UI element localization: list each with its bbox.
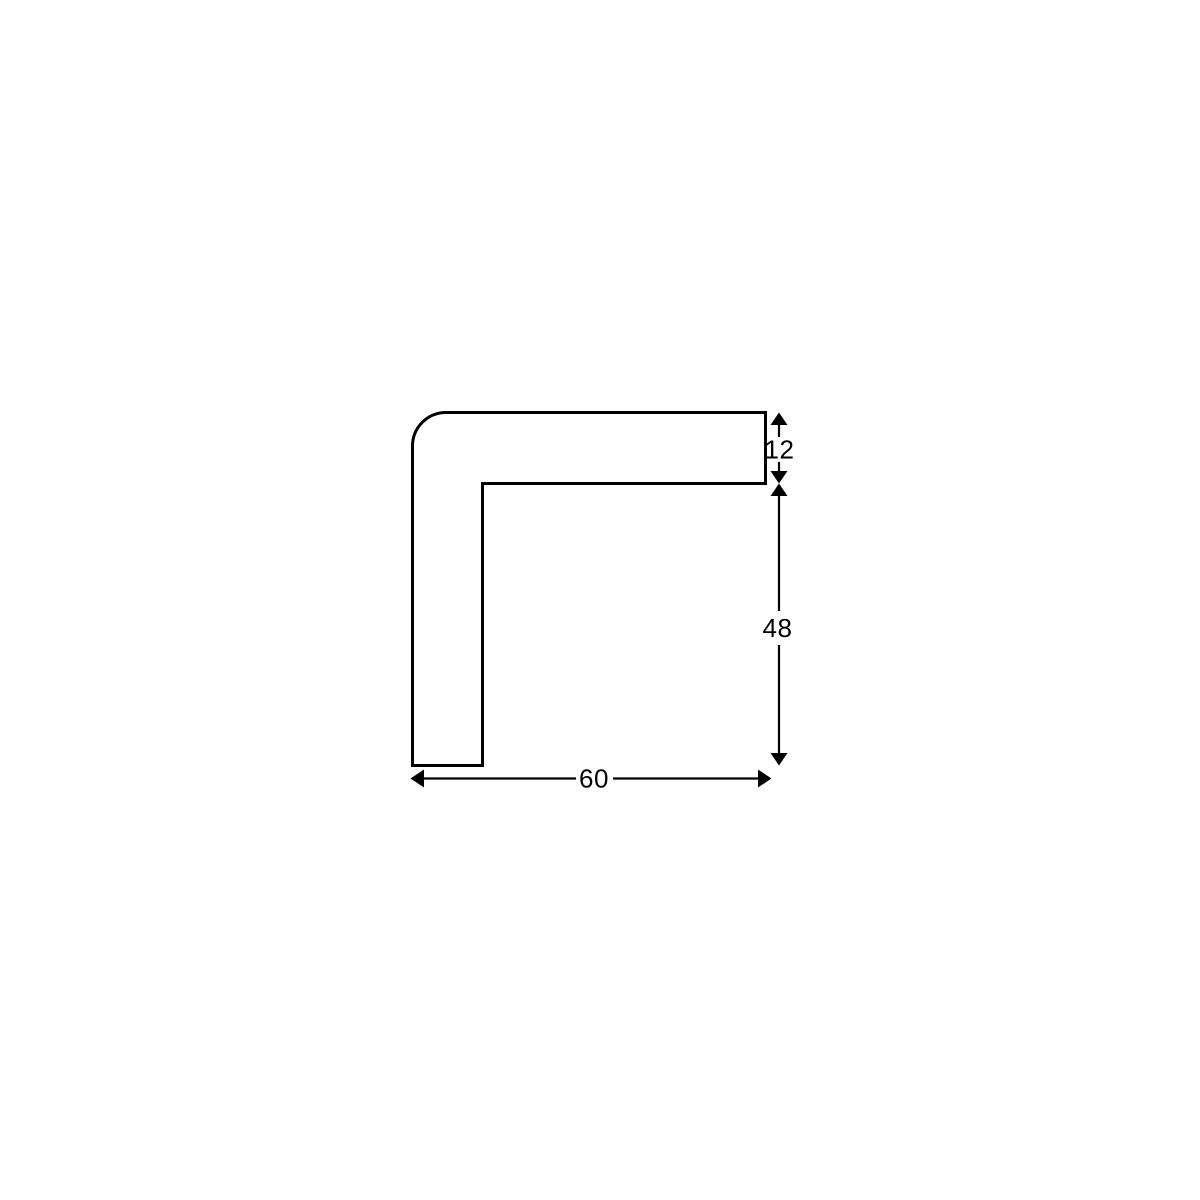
arrow-left-icon [411, 770, 425, 788]
dimension-width-label: 60 [579, 764, 609, 794]
diagram-canvas: 12 48 60 [0, 0, 1200, 1200]
arrow-down-icon [771, 471, 788, 484]
dimension-thickness-label: 12 [765, 435, 795, 465]
corner-profile-dimension-diagram: 12 48 60 [0, 0, 1200, 1200]
arrow-right-icon [758, 770, 772, 788]
arrow-up-icon [771, 484, 788, 497]
arrow-down-icon [771, 753, 788, 766]
arrow-up-icon [771, 413, 788, 426]
dimension-thickness: 12 [765, 413, 795, 484]
dimension-width: 60 [411, 764, 772, 794]
dimension-height-label: 48 [763, 613, 793, 643]
dimension-height: 48 [763, 484, 793, 766]
l-profile-outline [413, 413, 766, 766]
